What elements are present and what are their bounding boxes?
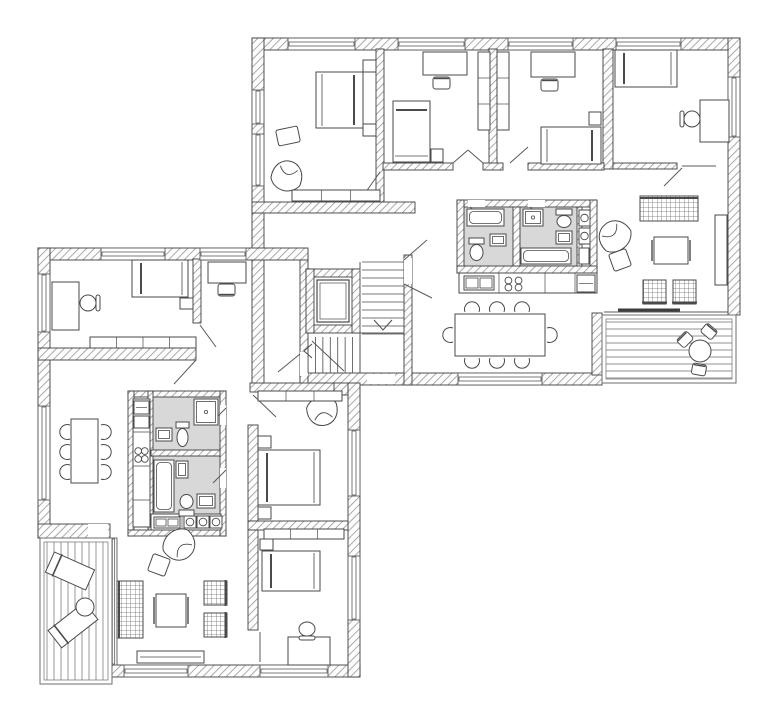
door-leaf [664,168,682,186]
door-leaf [510,147,528,163]
dining-chair [465,358,480,368]
armchair [268,157,305,194]
tub-rim [154,460,174,512]
nightstand-top [180,298,193,309]
desk [52,282,79,330]
toilet [176,422,189,447]
door-opening [300,352,308,376]
deck-border [602,315,736,383]
dining-chair [101,465,111,480]
closet-front [264,529,344,539]
nightstand-top [258,507,271,519]
wall-segment [457,266,597,273]
desk-top [531,52,575,77]
wicker-chair [204,580,227,606]
chair [218,284,235,296]
office-chair [80,295,100,311]
dining-chair [490,302,505,312]
dining-chair [60,425,70,440]
closet [258,391,342,401]
nightstand [260,539,273,550]
elevator-cab [317,280,349,322]
desk-top [288,637,330,665]
nightstand-top [363,124,376,136]
nightstand [363,60,376,72]
chair-seat [684,111,700,127]
nightstand-top [431,149,443,162]
window [616,38,681,50]
bed-frame [316,72,363,128]
toilet [556,209,572,228]
wall-segment [592,313,602,375]
door-opening [468,200,485,207]
chair-back [60,425,70,440]
door-leaf [200,325,216,347]
table-top [71,419,98,483]
burner [135,456,142,463]
chair [541,79,558,91]
window [728,77,740,137]
wall-segment [248,425,258,521]
burner [141,448,148,455]
nightstand [431,149,443,162]
bed [393,101,430,162]
bath-sink [490,234,506,246]
bathtub [467,209,504,226]
wicker-chair [642,280,667,304]
dining-table [455,314,545,356]
toilet [469,238,484,261]
chair [691,363,707,376]
elevator-car [317,280,349,322]
window [398,38,465,50]
table-top [689,340,711,362]
chair-seat [80,295,96,311]
window [348,556,360,620]
shower [194,399,218,425]
chair-back [443,328,453,343]
window [252,134,264,186]
burner [515,277,522,284]
cabinet [579,248,589,264]
sofa-body [640,196,698,221]
toilet-bowl [557,216,571,228]
nightstand-top [589,112,601,125]
closet [90,337,196,348]
burner-unit [197,516,209,528]
ottoman-top [276,126,301,146]
sideboard-top [715,215,727,285]
nightstand [363,124,376,136]
wicker-chair [204,612,227,638]
stair-flight [362,262,404,334]
burner [515,284,522,291]
window [200,248,246,260]
wall-segment [306,269,314,333]
desk [423,52,467,75]
bed [132,260,188,297]
wall-segment [483,163,503,170]
desk [531,52,575,77]
nightstand [589,112,601,125]
wall-segment [603,49,613,169]
dining-chair [515,302,530,312]
kitchen-sink [464,276,494,290]
shower-tray [194,399,218,425]
chair-back [465,302,480,312]
wall-segment [348,383,360,677]
bath-sink [156,428,172,441]
ottoman [276,126,301,146]
wall-segment [590,200,597,273]
burner [505,277,512,284]
door-opening [367,374,395,384]
office-chair [680,111,700,127]
bed [262,551,320,591]
cabinet [134,416,149,428]
tv-board [137,651,204,663]
wall-segment [128,391,226,397]
nightstand-top [260,539,273,550]
closet [264,529,344,539]
threshold-line [312,341,344,371]
wardrobe-body [478,52,490,130]
armchair [593,214,637,258]
shower [523,209,543,226]
burner [135,448,142,455]
toilet-tank [176,422,189,428]
kitchen-sink [154,517,180,528]
toilet-tank [469,238,484,244]
dining-chair [465,302,480,312]
door-leaf [174,360,196,384]
wall-segment [613,163,677,169]
window [348,430,360,496]
window [458,373,542,385]
window [252,90,264,124]
desk-top [700,100,729,142]
toilet-bowl [470,245,483,261]
floor-plan-page [0,0,780,716]
washing-machine [579,210,590,226]
wall-segment [38,248,308,260]
nightstand [180,298,193,309]
nightstand-top [363,60,376,72]
door-opening [220,405,226,425]
toilet-bowl [177,429,188,447]
washing-machine [579,228,590,244]
stair-direction-arrow [374,320,392,330]
table-top [455,314,545,356]
window [508,38,573,50]
desk [208,262,246,283]
desk [288,637,330,665]
wall-segment [193,259,201,323]
nightstand [258,436,271,448]
deck [602,315,736,383]
closet [292,190,380,201]
burner-unit [184,516,196,528]
wall-segment [352,269,360,333]
window [38,274,50,332]
bed [541,127,601,164]
chair-back [96,295,100,311]
armchair-body [593,214,637,258]
chair-back [680,111,684,127]
door-opening [404,258,412,284]
wicker-body [204,581,227,605]
window [288,38,355,50]
door-leaf [468,150,483,163]
chair-back [299,636,315,640]
wardrobe [478,52,490,130]
sofa [640,196,698,221]
desk-top [208,262,246,283]
dining-chair [101,445,111,460]
bath-sink [197,494,215,508]
chair-back [60,465,70,480]
chair-back [101,465,111,480]
dining-chair [101,425,111,440]
chair [433,77,450,89]
door-leaf [453,150,468,163]
wall-segment [383,163,453,170]
window [260,665,328,677]
wardrobe-body [497,52,509,130]
chair-back [60,445,70,460]
bed [615,50,677,87]
dining-chair [60,445,70,460]
stair-flight [308,337,360,373]
chair-seat [299,622,315,636]
cabinet-body [579,248,589,264]
dining-chair [60,465,70,480]
dining-chair [443,328,453,343]
door-leaf [278,354,300,372]
sideboard [715,215,727,285]
round-table [76,598,94,616]
door-leaf [404,240,427,260]
bed [316,72,363,128]
cabinet-body [134,416,149,428]
wicker-body [673,280,696,304]
window [124,665,188,677]
chair-back [547,328,557,343]
toilet-tank [179,510,194,516]
burner [505,284,512,291]
bathtub [154,460,174,512]
wall-segment [38,348,196,360]
chair-back [490,302,505,312]
desk [700,100,729,142]
toilet-tank [556,209,572,215]
bath-sink [556,231,572,244]
fridge [134,401,149,414]
ottoman-top [147,553,170,576]
wall-segment [457,200,464,273]
closet-front [292,190,380,201]
burner [141,456,148,463]
wall-segment [248,530,258,630]
wall-segment [252,202,415,213]
bathtub [521,248,571,264]
fridge [577,275,595,292]
table-top [654,237,688,264]
chair-back [515,302,530,312]
closet-front [258,391,342,401]
desk-top [423,52,467,75]
chair-back [490,358,505,368]
wall-segment [376,49,384,203]
wardrobe [497,52,509,130]
toilet [179,495,194,517]
coffee-table [154,594,188,627]
floor-plan-canvas [0,0,780,716]
wicker-body [204,613,227,637]
coffee-table [652,237,690,264]
chair-back [515,358,530,368]
wall-segment [151,450,220,456]
table-top [76,598,94,616]
dining-chair [547,328,557,343]
desk-top [52,282,79,330]
office-chair [299,622,315,640]
armchair-body [268,157,305,194]
door-opening [88,524,108,538]
door-opening [528,200,545,207]
dining-chair [490,358,505,368]
chair-back [101,425,111,440]
wicker-chair [672,280,697,304]
bed [258,450,320,505]
bath-sink [176,461,188,478]
chair-back [465,358,480,368]
chair-back [101,445,111,460]
dining-table [71,419,98,483]
wicker-body [643,280,666,304]
nightstand-top [258,436,271,448]
window [38,406,50,500]
wall-segment [513,207,520,266]
window [101,248,165,260]
nightstand [258,507,271,519]
sofa-body [117,581,143,638]
sofa [117,581,143,638]
burner-unit [210,516,222,528]
ottoman [147,553,170,576]
round-table [689,340,711,362]
dining-chair [515,358,530,368]
toilet-bowl [180,495,193,509]
table-top [156,594,186,627]
